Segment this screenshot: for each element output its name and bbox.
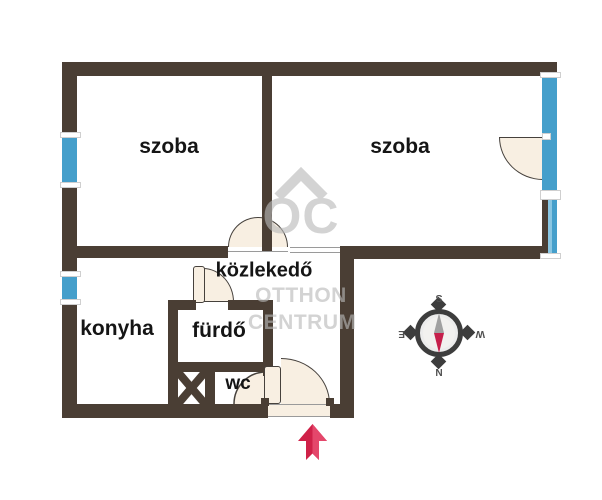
kitchen-label: konyha bbox=[80, 317, 154, 341]
window-cap bbox=[60, 271, 81, 277]
wall-bottom-left-segment bbox=[62, 404, 268, 418]
wall-shaft-right bbox=[205, 362, 215, 404]
window-kitchen bbox=[62, 276, 77, 299]
compass-rose: N S E W bbox=[399, 291, 479, 375]
wall-bathroom-left bbox=[168, 300, 178, 404]
window-cap bbox=[540, 253, 561, 259]
wall-lower-right bbox=[340, 246, 354, 418]
entrance-arrow-icon bbox=[297, 423, 328, 461]
room-label-left: szoba bbox=[139, 135, 199, 159]
wall-mid-left bbox=[62, 246, 228, 258]
compass-letter-east: E bbox=[398, 328, 405, 339]
compass-needle-north bbox=[434, 333, 444, 353]
door-jamb-bracket bbox=[326, 398, 334, 406]
window-cap bbox=[60, 182, 81, 188]
bathroom-label: fürdő bbox=[192, 319, 246, 343]
hallway-label: közlekedő bbox=[216, 260, 313, 283]
wall-bottom-right-segment bbox=[330, 404, 354, 418]
door-jamb-bracket bbox=[261, 398, 269, 406]
window-room-left bbox=[62, 137, 77, 182]
compass-needle-south bbox=[434, 313, 444, 333]
compass-letter-south: S bbox=[399, 292, 479, 303]
doorway-line-room-left bbox=[228, 251, 288, 252]
window-cap bbox=[540, 190, 561, 200]
entrance-threshold bbox=[268, 404, 330, 417]
passage-room-right bbox=[290, 247, 340, 253]
compass-letter-west: W bbox=[476, 328, 485, 339]
room-label-right: szoba bbox=[370, 135, 430, 159]
wall-room-right-bottom bbox=[340, 246, 557, 259]
window-cap bbox=[60, 132, 81, 138]
wall-bathroom-top-left bbox=[168, 300, 196, 310]
door-hinge-mark bbox=[542, 133, 551, 140]
wall-bathroom-bottom bbox=[168, 362, 273, 372]
window-cap bbox=[60, 299, 81, 305]
door-leaf-bathroom bbox=[193, 266, 205, 303]
toilet-label: wc bbox=[225, 373, 250, 395]
wall-room-divider bbox=[262, 76, 272, 252]
window-cap bbox=[540, 72, 561, 78]
compass-letter-north: N bbox=[399, 366, 479, 377]
floor-plan: szoba szoba közlekedő konyha fürdő wc OC… bbox=[0, 0, 602, 500]
window-room-right-lower-highlight bbox=[548, 198, 552, 257]
wall-left bbox=[62, 62, 77, 418]
wall-top bbox=[62, 62, 557, 76]
